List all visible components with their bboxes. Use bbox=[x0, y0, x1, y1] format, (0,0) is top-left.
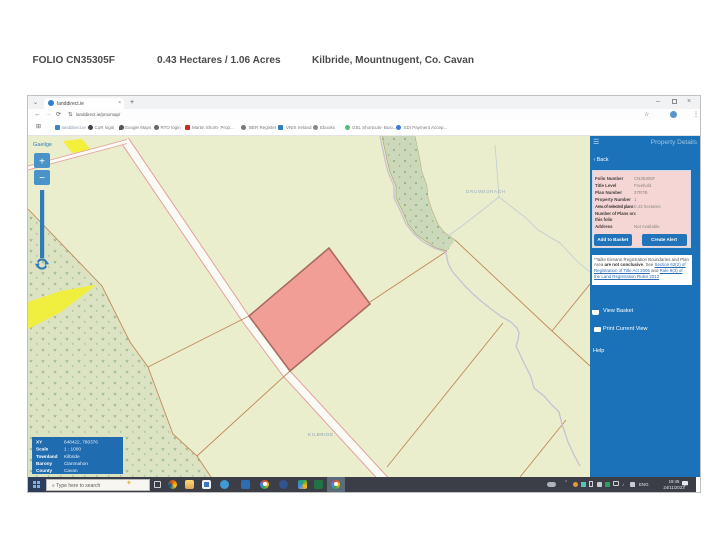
svg-text:Cavan: Cavan bbox=[64, 468, 78, 473]
svg-text:DRUMBORAGH: DRUMBORAGH bbox=[466, 189, 506, 194]
svg-text:648422, 780376: 648422, 780376 bbox=[64, 440, 98, 445]
svg-text:−: − bbox=[39, 173, 45, 184]
svg-text:County: County bbox=[36, 468, 53, 473]
svg-text:KILBRIDE: KILBRIDE bbox=[308, 432, 334, 437]
svg-text:1 : 1000: 1 : 1000 bbox=[64, 447, 81, 452]
svg-text:Clanmahon: Clanmahon bbox=[64, 461, 88, 466]
svg-text:Kilbride: Kilbride bbox=[64, 454, 80, 459]
svg-text:Scale: Scale bbox=[36, 447, 49, 452]
svg-text:Gaeilge: Gaeilge bbox=[33, 142, 52, 148]
svg-text:Townland: Townland bbox=[36, 454, 58, 459]
svg-text:XY: XY bbox=[36, 440, 43, 445]
svg-text:+: + bbox=[39, 157, 45, 168]
svg-text:Barony: Barony bbox=[36, 461, 53, 466]
